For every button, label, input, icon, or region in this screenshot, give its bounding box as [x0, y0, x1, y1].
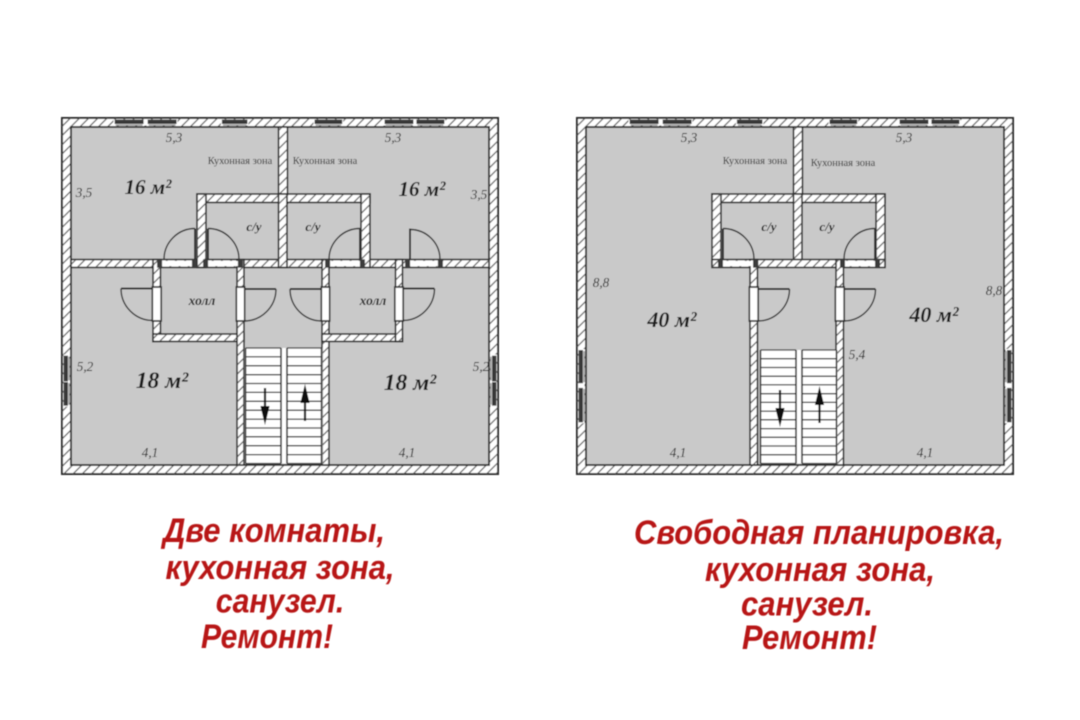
- svg-text:санузел.: санузел.: [216, 583, 345, 621]
- svg-text:3,5: 3,5: [75, 185, 93, 200]
- svg-text:с/у: с/у: [819, 219, 834, 234]
- svg-text:5,3: 5,3: [681, 130, 698, 145]
- svg-text:санузел.: санузел.: [741, 586, 873, 624]
- svg-text:4,1: 4,1: [399, 445, 415, 460]
- svg-text:8,8: 8,8: [593, 275, 610, 290]
- svg-text:кухонная зона,: кухонная зона,: [705, 551, 935, 589]
- svg-text:8,8: 8,8: [986, 283, 1003, 298]
- svg-text:Ремонт!: Ремонт!: [742, 619, 877, 657]
- svg-text:с/у: с/у: [246, 219, 261, 234]
- svg-text:кухонная зона,: кухонная зона,: [166, 549, 395, 587]
- svg-text:5,3: 5,3: [385, 130, 402, 145]
- svg-text:Кухонная зона: Кухонная зона: [293, 156, 358, 167]
- svg-text:3,5: 3,5: [470, 187, 488, 202]
- svg-text:5,2: 5,2: [77, 359, 94, 374]
- svg-text:5,2: 5,2: [473, 359, 490, 374]
- svg-text:5,4: 5,4: [849, 347, 866, 362]
- svg-text:холл: холл: [359, 293, 387, 308]
- svg-text:40 м²: 40 м²: [908, 302, 959, 327]
- svg-text:4,1: 4,1: [670, 445, 686, 460]
- svg-text:Две комнаты,: Две комнаты,: [160, 512, 385, 550]
- svg-text:с/у: с/у: [305, 219, 320, 234]
- svg-text:5,3: 5,3: [166, 130, 183, 145]
- svg-text:40 м²: 40 м²: [646, 307, 697, 332]
- svg-text:Кухонная зона: Кухонная зона: [723, 156, 788, 167]
- svg-text:5,3: 5,3: [896, 130, 913, 145]
- svg-text:холл: холл: [188, 293, 216, 308]
- svg-text:16 м²: 16 м²: [125, 175, 173, 199]
- svg-text:18 м²: 18 м²: [384, 370, 437, 396]
- svg-text:16 м²: 16 м²: [399, 177, 447, 201]
- svg-text:с/у: с/у: [761, 219, 776, 234]
- svg-text:Ремонт!: Ремонт!: [201, 618, 333, 656]
- svg-text:Кухонная зона: Кухонная зона: [811, 158, 876, 169]
- svg-text:4,1: 4,1: [142, 445, 158, 460]
- svg-text:4,1: 4,1: [917, 445, 933, 460]
- svg-text:Кухонная зона: Кухонная зона: [208, 156, 273, 167]
- svg-text:Свободная планировка,: Свободная планировка,: [634, 514, 1004, 552]
- svg-text:18 м²: 18 м²: [136, 368, 189, 394]
